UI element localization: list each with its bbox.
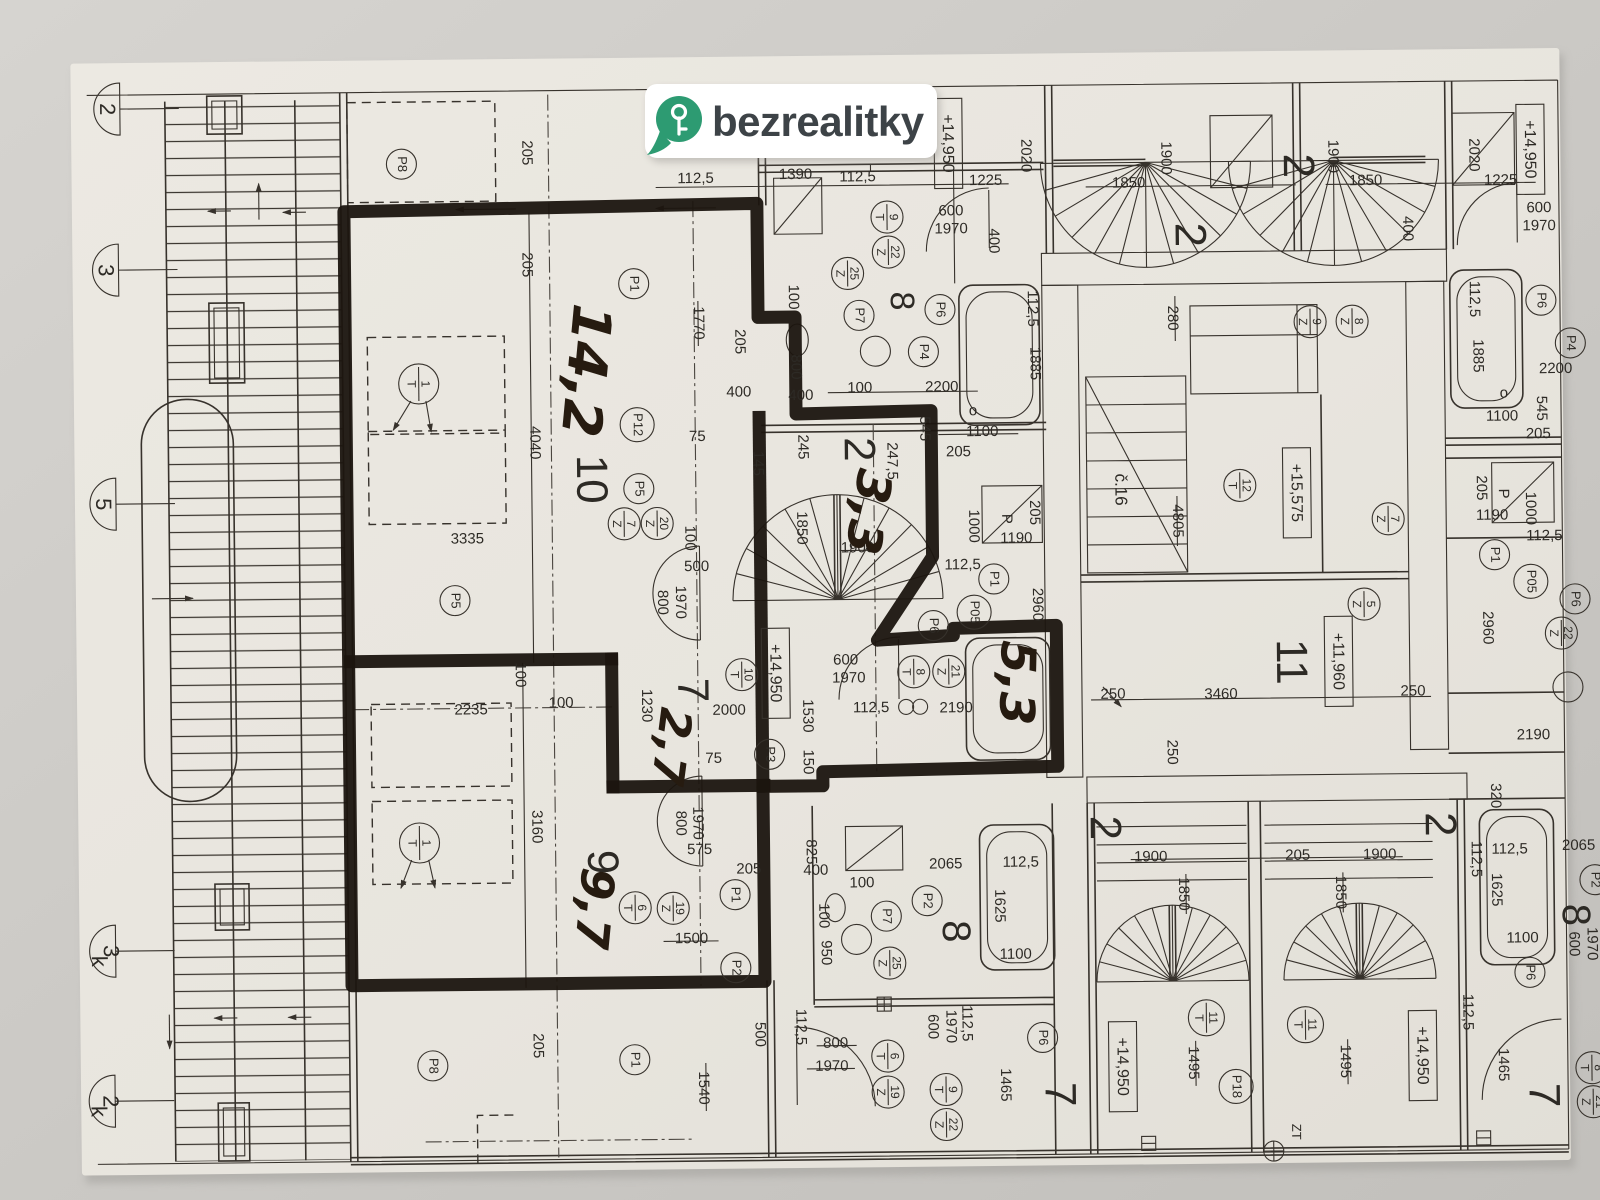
dimension-label: 100 <box>785 284 802 309</box>
misc-label: č.16 <box>1111 473 1130 505</box>
dimension-label: 800 <box>823 1034 848 1051</box>
symbol-circle: 22Z <box>872 236 904 268</box>
room-number: 2 <box>1165 222 1214 247</box>
position-circle-label: P7 <box>880 908 895 924</box>
elevation-mark-part: +14,950 <box>1413 1026 1431 1085</box>
symbol-circle-part: Z <box>610 520 624 527</box>
handwritten-area: 5,3 <box>988 640 1046 726</box>
dimension-label: 1850 <box>1175 877 1192 911</box>
axis-marker-part <box>116 504 175 505</box>
dimension-label: 205 <box>1473 475 1490 500</box>
elevation-mark-part: +14,950 <box>939 114 957 173</box>
symbol-circle: 1T <box>399 364 439 404</box>
room-number: 2 <box>1416 812 1465 837</box>
position-circle-label: P7 <box>853 307 868 323</box>
dimension-label: 205 <box>946 443 971 460</box>
symbol-circle: 9T <box>871 201 903 233</box>
dimension-label: 1625 <box>991 889 1008 923</box>
symbol-circle-part: T <box>1226 482 1240 490</box>
symbol-circle-part: T <box>405 380 419 388</box>
dimension-label: 2960 <box>1029 588 1046 622</box>
symbol-circle-part: Z <box>932 1121 946 1128</box>
symbol-circle: 8Z <box>1336 305 1368 337</box>
dimension-label: 1625 <box>1488 873 1505 907</box>
dimension-label: 600 <box>833 651 858 668</box>
dimension-label: 112,5 <box>1459 994 1476 1031</box>
symbol-circle-part: 22 <box>888 245 902 259</box>
dimension-label: 150 <box>800 749 817 774</box>
symbol-circle: 10T <box>726 658 758 690</box>
symbol-circle-part: Z <box>1296 318 1310 325</box>
dimension-label: 112,5 <box>853 699 890 716</box>
dimension-label: 1900 <box>1134 848 1168 865</box>
dimension-label: 205 <box>731 329 748 354</box>
axis-marker-part: 5 <box>91 498 116 511</box>
misc-label: o <box>1500 385 1509 402</box>
position-circle-label: P2 <box>729 960 744 976</box>
position-circle-label: P2 <box>921 893 936 909</box>
dimension-label: 1850 <box>1332 876 1349 910</box>
symbol-circle-part: 7 <box>624 520 638 527</box>
symbol-circle-part: T <box>405 839 419 847</box>
elevation-mark-part: +14,950 <box>766 644 784 703</box>
symbol-circle-part: Z <box>1350 600 1364 607</box>
dimension-label: 2190 <box>939 699 973 716</box>
symbol-circle: 6T <box>872 1040 904 1072</box>
dimension-label: 75 <box>705 750 722 767</box>
symbol-circle: 21Z <box>933 655 965 687</box>
symbol-circle-part: 8 <box>1352 318 1366 325</box>
position-circle-label: P6 <box>927 618 942 634</box>
symbol-circle-part: Z <box>833 270 847 277</box>
symbol-circle-part: 19 <box>888 1085 902 1099</box>
position-circle-label: P1 <box>1488 547 1503 563</box>
dimension-label: 1190 <box>1476 507 1508 524</box>
dimension-label: 205 <box>1526 425 1551 442</box>
dimension-label: 400 <box>726 383 751 400</box>
dimension-label: 800 <box>654 590 671 615</box>
symbol-circle-part: Z <box>659 905 673 912</box>
dimension-label: 1970 <box>1522 217 1556 234</box>
dimension-label: 280 <box>1164 305 1181 330</box>
dimension-label: 1100 <box>1486 407 1518 424</box>
dimension-label: 250 <box>1100 686 1125 703</box>
dimension-label: 1495 <box>1337 1045 1354 1079</box>
symbol-circle-part: 1 <box>419 380 433 387</box>
handwritten-area: 14,2 <box>549 301 624 440</box>
dimension-label: 4040 <box>526 426 543 460</box>
dimension-label: 112,5 <box>1526 527 1563 544</box>
dimension-label: 2960 <box>1479 611 1496 645</box>
axis-marker-sub: k <box>86 1106 111 1118</box>
dimension-label: 2235 <box>454 701 488 718</box>
dimension-label: 100 <box>548 694 573 711</box>
dimension-label: 112,5 <box>792 1009 809 1046</box>
dimension-label: 205 <box>530 1033 547 1058</box>
dimension-label: 800 <box>787 354 804 379</box>
dimension-label: 825 <box>803 839 820 864</box>
dimension-label: 3460 <box>1204 685 1238 702</box>
axis-marker-part <box>119 270 178 271</box>
floorplan-photo: 112,51390112,512252020185019001900185020… <box>0 0 1600 1200</box>
dimension-label: 75 <box>689 428 706 445</box>
dimension-label: P <box>998 514 1015 524</box>
symbol-circle-part: Z <box>874 248 888 255</box>
dimension-label: 112,5 <box>1002 853 1039 870</box>
dimension-label: 320 <box>1487 783 1504 808</box>
symbol-circle-part: 9 <box>887 214 901 221</box>
symbol-circle-part: 10 <box>742 668 756 682</box>
dimension-label: P <box>1495 489 1512 499</box>
dimension-label: 1530 <box>799 699 816 733</box>
dimension-label: 1770 <box>690 306 707 340</box>
dimension-label: 500 <box>751 1022 768 1047</box>
symbol-circle: 22Z <box>1545 617 1577 649</box>
dimension-label: 800 <box>672 811 689 836</box>
position-circle-label: P12 <box>631 413 646 436</box>
dimension-label: 1000 <box>965 509 982 543</box>
dimension-label: 500 <box>684 558 709 575</box>
dimension-label: 1100 <box>1506 929 1538 946</box>
symbol-circle-part: Z <box>1338 318 1352 325</box>
position-circle-label: P6 <box>1569 591 1584 607</box>
symbol-circle-part: 21 <box>949 665 963 679</box>
symbol-circle-part: 25 <box>847 267 861 281</box>
symbol-circle: 22Z <box>930 1108 962 1140</box>
dimension-label: 100 <box>512 662 529 687</box>
symbol-circle-part: 11 <box>1305 1018 1319 1031</box>
dimension-label: 950 <box>818 940 835 965</box>
dimension-label: 205 <box>1285 847 1310 864</box>
dimension-label: 145 <box>749 451 766 476</box>
elevation-mark-part: +11,960 <box>1329 633 1347 690</box>
room-number: 11 <box>1267 639 1316 685</box>
symbol-circle: 12T <box>1224 469 1256 501</box>
dimension-label: 4805 <box>1169 504 1186 538</box>
position-circle-label: P8 <box>395 156 410 172</box>
symbol-circle: 7Z <box>1372 503 1404 535</box>
bezrealitky-logo-text: bezrealitky <box>712 98 925 145</box>
position-circle-label: P5 <box>448 593 463 609</box>
dimension-label: 100 <box>849 874 874 891</box>
dimension-label: 1850 <box>793 511 810 545</box>
symbol-circle-part: Z <box>1547 629 1561 636</box>
dimension-label: 1970 <box>689 806 706 840</box>
dimension-label: 1465 <box>1495 1048 1512 1082</box>
symbol-circle: 25Z <box>831 257 863 289</box>
dimension-label: 2200 <box>1539 360 1573 377</box>
symbol-circle: 9T <box>930 1073 962 1105</box>
dimension-label: 1970 <box>672 585 689 619</box>
dimension-label: 112,5 <box>944 556 981 573</box>
dimension-label: 112,5 <box>1024 290 1041 327</box>
symbol-circle-part: 6 <box>635 904 649 911</box>
symbol-circle: 11T <box>1287 1007 1323 1043</box>
dimension-label: 250 <box>1164 740 1181 765</box>
dimension-label: 1970 <box>934 220 968 237</box>
dimension-label: 1970 <box>942 1010 959 1044</box>
position-circle-label: P1 <box>627 276 642 292</box>
room-number: 2 <box>835 437 884 462</box>
symbol-circle-part: 8 <box>1592 1064 1600 1071</box>
dimension-label: 1970 <box>815 1057 849 1074</box>
symbol-circle-part: 9 <box>1310 318 1324 325</box>
symbol-circle-part: 20 <box>657 517 671 531</box>
symbol-circle-part: 9 <box>946 1086 960 1093</box>
room-number: 2 <box>1081 815 1130 840</box>
dimension-label: 112,5 <box>1466 281 1483 318</box>
symbol-circle: 9Z <box>1294 305 1326 337</box>
dimension-label: 112,5 <box>1491 840 1528 857</box>
dimension-label: 1390 <box>779 166 813 183</box>
symbol-circle-part: 25 <box>890 956 904 970</box>
symbol-circle-part: T <box>932 1086 946 1094</box>
axis-marker-part: 2 <box>95 103 120 116</box>
symbol-circle: 8T <box>898 656 930 688</box>
dimension-label: 1900 <box>1324 140 1341 174</box>
elevation-mark-part: +15,575 <box>1287 464 1305 523</box>
symbol-circle-part: T <box>1192 1014 1206 1022</box>
dimension-label: 400 <box>985 228 1002 253</box>
misc-label: ZT <box>1289 1124 1304 1140</box>
dimension-label: 1000 <box>1522 492 1539 526</box>
dimension-label: 1100 <box>966 423 998 440</box>
dimension-label: 2020 <box>1017 139 1034 173</box>
dimension-label: 100 <box>847 379 872 396</box>
symbol-circle-part: 5 <box>1364 601 1378 608</box>
position-circle-label: P6 <box>933 301 948 317</box>
symbol-circle-part: T <box>728 671 742 679</box>
symbol-circle: 7Z <box>608 508 640 540</box>
symbol-circle-part: Z <box>1579 1098 1593 1105</box>
symbol-circle: 11T <box>1188 1000 1224 1036</box>
position-circle-label: P5 <box>632 481 647 497</box>
dimension-label: 1970 <box>832 669 866 686</box>
dimension-label: 545 <box>916 416 933 441</box>
symbol-circle-part: 22 <box>1561 626 1575 640</box>
room-number: 10 <box>567 454 617 503</box>
symbol-circle-part: 8 <box>914 668 928 675</box>
dimension-label: 600 <box>1526 199 1551 216</box>
elevation-mark-part: +14,950 <box>1113 1037 1131 1096</box>
symbol-circle-part: Z <box>643 520 657 527</box>
dimension-label: 1885 <box>1469 339 1486 373</box>
dimension-label: 1850 <box>1349 172 1383 189</box>
symbol-circle-part: T <box>874 1052 888 1060</box>
dimension-label: 2190 <box>1517 726 1551 743</box>
dimension-label: 1900 <box>1363 846 1397 863</box>
axis-marker-part <box>120 108 179 109</box>
dimension-label: 1225 <box>969 172 1003 189</box>
floorplan-svg: 112,51390112,512252020185019001900185020… <box>0 0 1600 1200</box>
dimension-label: 1900 <box>1157 141 1174 175</box>
dimension-label: 2020 <box>1465 138 1482 172</box>
axis-marker-sub: k <box>87 956 112 968</box>
position-circle-label: P4 <box>917 344 932 360</box>
position-circle-label: P3 <box>763 746 778 762</box>
symbol-circle: 19Z <box>657 892 689 924</box>
dimension-label: 400 <box>803 862 828 879</box>
bezrealitky-badge: bezrealitky <box>645 84 940 162</box>
symbol-circle-part: 6 <box>888 1053 902 1060</box>
dimension-label: 100 <box>681 526 698 551</box>
dimension-label: 2000 <box>712 702 746 719</box>
dimension-label: 112,5 <box>839 168 876 185</box>
room-number: 8 <box>934 920 978 943</box>
room-number: 2 <box>1274 153 1323 178</box>
symbol-circle: 6T <box>619 892 651 924</box>
dimension-label: 112,5 <box>958 1005 975 1042</box>
dimension-label: 205 <box>518 252 535 277</box>
dimension-label: 250 <box>1400 682 1425 699</box>
symbol-circle-part: T <box>1578 1064 1592 1072</box>
position-circle-label: P1 <box>628 1052 643 1068</box>
symbol-circle-part: Z <box>876 959 890 966</box>
symbol-circle-part: 12 <box>1240 479 1254 493</box>
dimension-label: 112,5 <box>677 170 714 187</box>
symbol-circle: 5Z <box>1348 588 1380 620</box>
dimension-label: 1970 <box>1583 927 1600 961</box>
position-circle-label: P05 <box>968 601 983 624</box>
symbol-circle-part: T <box>1291 1021 1305 1029</box>
symbol-circle-part: 19 <box>673 902 687 916</box>
dimension-label: 600 <box>1566 931 1583 956</box>
dimension-label: 112,5 <box>1468 841 1485 878</box>
dimension-label: 1100 <box>1000 946 1032 963</box>
symbol-circle-part: T <box>621 904 635 912</box>
position-circle-label: P6 <box>1534 292 1549 308</box>
elevation-mark-part: +14,950 <box>1521 120 1539 179</box>
dimension-label: 2065 <box>1562 837 1596 854</box>
room-number: 7 <box>1519 1083 1568 1108</box>
room-number: 8 <box>883 291 921 310</box>
dimension-label: 1495 <box>1185 1046 1202 1080</box>
dimension-label: 600 <box>938 202 963 219</box>
dimension-label: 1465 <box>997 1068 1014 1102</box>
symbol-circle: 25Z <box>874 947 906 979</box>
symbol-circle-part: Z <box>935 668 949 675</box>
position-circle-label: P1 <box>987 571 1002 587</box>
dimension-label: 1540 <box>695 1071 712 1105</box>
dimension-label: 1190 <box>1000 530 1032 547</box>
room-number: 8 <box>1554 904 1598 927</box>
position-circle-label: P6 <box>1523 964 1538 980</box>
symbol-circle-part: 22 <box>946 1118 960 1132</box>
dimension-label: 205 <box>518 140 535 165</box>
dimension-label: 400 <box>1399 216 1416 241</box>
dimension-label: 205 <box>736 860 761 877</box>
dimension-label: 100 <box>815 903 832 928</box>
axis-marker-part: 3 <box>94 264 119 277</box>
dimension-label: 400 <box>788 387 813 404</box>
position-circle-label: P1 <box>729 887 744 903</box>
dimension-label: 600 <box>924 1014 941 1039</box>
symbol-circle: 20Z <box>641 507 673 539</box>
dimension-label: 205 <box>1026 500 1043 525</box>
dimension-label: 2200 <box>925 378 959 395</box>
dimension-label: 2065 <box>929 855 963 872</box>
dimension-label: 1500 <box>675 930 709 947</box>
dimension-label: 1850 <box>1112 174 1146 191</box>
symbol-circle-part: T <box>873 213 887 221</box>
position-circle-label: P4 <box>1564 335 1579 351</box>
symbol-circle: 1T <box>399 823 439 863</box>
symbol-circle: 19Z <box>872 1076 904 1108</box>
room-number: 7 <box>668 678 717 703</box>
symbol-circle-part: 1 <box>419 840 433 847</box>
dimension-label: 3335 <box>451 530 485 547</box>
position-circle-label: P6 <box>1036 1029 1051 1045</box>
dimension-label: 1885 <box>1026 347 1043 381</box>
plan-paper: 112,51390112,512252020185019001900185020… <box>70 48 1600 1184</box>
symbol-circle-part: 11 <box>1206 1011 1220 1024</box>
symbol-circle-part: Z <box>874 1088 888 1095</box>
dimension-label: 3160 <box>528 810 545 844</box>
handwritten-area: 2,7 <box>641 705 702 789</box>
dimension-label: 575 <box>687 841 712 858</box>
position-circle-label: P2 <box>1588 872 1600 888</box>
dimension-label: 1225 <box>1484 171 1518 188</box>
symbol-circle-part: Z <box>1374 515 1388 522</box>
room-number: 7 <box>1035 1082 1084 1107</box>
position-circle-label: P8 <box>426 1058 441 1074</box>
position-circle-label: P05 <box>1524 570 1539 593</box>
symbol-circle-part: T <box>900 668 914 676</box>
dimension-label: 245 <box>794 434 811 459</box>
handwritten-area: 9,7 <box>564 865 625 951</box>
symbol-circle-part: 7 <box>1388 515 1402 522</box>
misc-label: o <box>969 402 978 419</box>
dimension-label: 545 <box>1533 396 1550 421</box>
position-circle-label: P18 <box>1230 1075 1245 1098</box>
